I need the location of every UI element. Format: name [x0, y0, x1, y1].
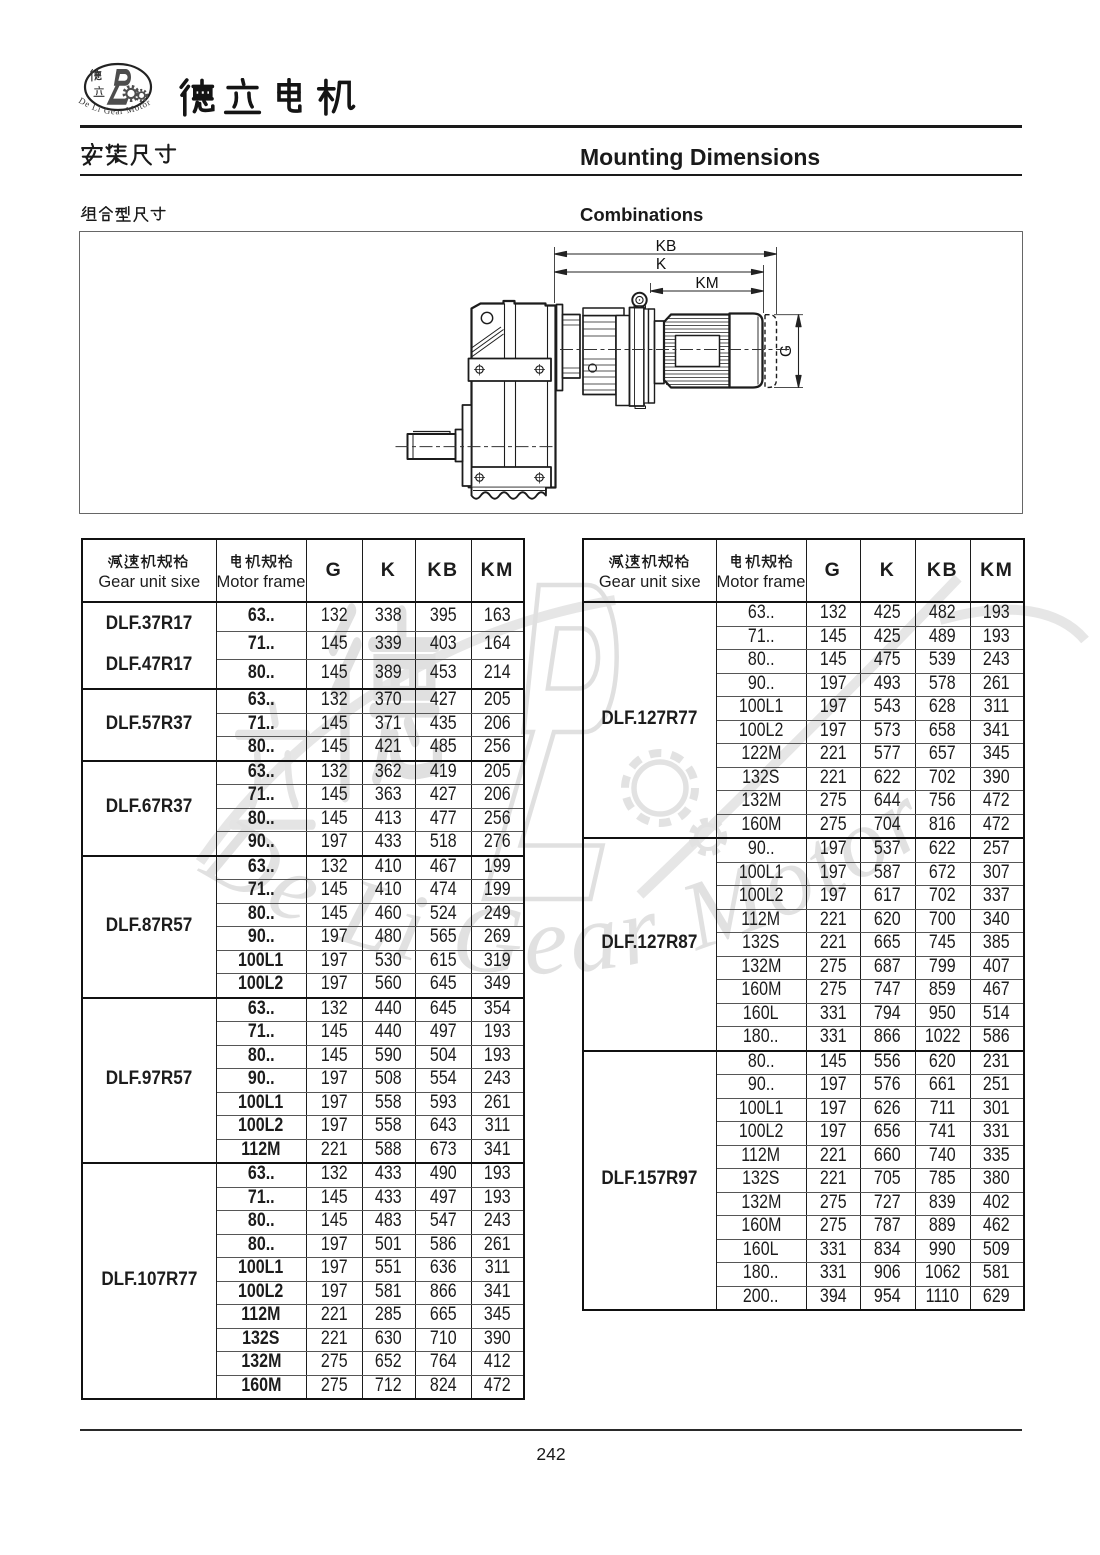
svg-text:K: K	[656, 256, 667, 273]
svg-text:G: G	[778, 345, 795, 357]
svg-text:KB: KB	[656, 238, 677, 255]
svg-text:KM: KM	[695, 275, 718, 292]
